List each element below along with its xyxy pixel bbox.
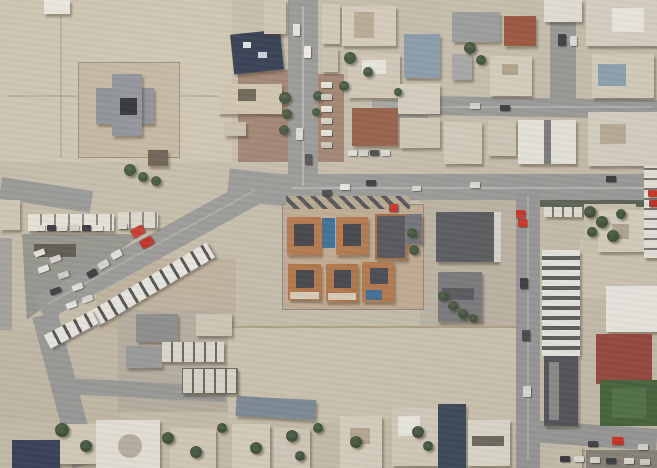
tree	[476, 55, 486, 65]
dark-shed	[148, 150, 168, 166]
tree	[295, 451, 305, 461]
warehouse-striped	[542, 250, 580, 356]
median-top-vertical	[302, 6, 304, 186]
villa-5-trim	[328, 293, 356, 300]
building-s1	[444, 122, 482, 164]
school-units-row-2	[182, 368, 238, 394]
red-vehicle	[518, 219, 527, 227]
tree	[409, 245, 419, 255]
small-building-tc	[224, 122, 246, 136]
tree	[469, 314, 477, 322]
tree	[312, 108, 320, 116]
car	[322, 190, 332, 196]
parked-car	[321, 118, 332, 124]
tree	[407, 228, 417, 238]
hex-building-core	[120, 98, 137, 115]
white-villa-dome	[118, 434, 142, 458]
parked-car	[321, 82, 332, 88]
darkblue-building-bottom	[438, 404, 466, 468]
tree	[458, 309, 468, 319]
building-r1	[398, 84, 440, 114]
tree	[217, 423, 227, 433]
terracotta-building	[504, 16, 536, 46]
villa-4-trim	[290, 292, 319, 299]
car	[606, 176, 616, 182]
tree	[250, 442, 262, 454]
red-vehicle	[389, 204, 398, 212]
building-east-of-road	[322, 48, 338, 72]
twin-white-gap	[544, 120, 551, 164]
villa-1-roof	[294, 224, 314, 246]
tree	[151, 176, 161, 186]
tree	[596, 216, 608, 228]
parked-car	[606, 458, 616, 464]
tree	[286, 430, 298, 442]
car	[500, 105, 510, 111]
parked-car	[640, 459, 650, 465]
building-s2	[488, 120, 516, 156]
car	[293, 24, 300, 36]
tr-cluster-a-sub	[612, 8, 644, 32]
parked-car	[118, 223, 127, 229]
median-right-vertical	[527, 196, 529, 460]
blue-strip-building	[404, 34, 440, 78]
median-topright-street	[434, 106, 652, 108]
tree	[344, 52, 356, 64]
parked-car	[624, 458, 634, 464]
tree	[55, 423, 69, 437]
gray-small-tr	[452, 54, 472, 80]
block-a-sub	[354, 12, 374, 38]
tree	[279, 125, 289, 135]
tree	[423, 441, 433, 451]
red-vehicle	[648, 190, 657, 197]
brown-building	[352, 108, 398, 146]
red-sports-court	[596, 334, 652, 384]
parked-car	[348, 150, 357, 156]
building-r2	[400, 118, 440, 148]
parked-car	[321, 142, 332, 148]
parked-car	[47, 225, 56, 231]
school-units-row-1	[162, 342, 224, 362]
parked-car	[82, 225, 91, 231]
parked-car	[321, 130, 332, 136]
red-vehicle	[612, 437, 623, 445]
parked-car	[94, 225, 103, 231]
car	[522, 330, 530, 341]
tree	[607, 230, 619, 242]
tree	[448, 301, 458, 311]
car	[523, 386, 531, 397]
beige-tr-courtyard	[502, 64, 518, 75]
villa-3-dark	[375, 214, 407, 260]
tree	[363, 67, 373, 77]
navy-roof-corner	[12, 440, 60, 468]
parked-car	[321, 106, 332, 112]
sand-track-v	[60, 8, 62, 158]
tree	[350, 436, 362, 448]
car	[588, 441, 598, 447]
villa-4-roof	[296, 270, 314, 288]
villa-5-roof	[334, 270, 351, 288]
parked-car	[36, 225, 45, 231]
navy-roof-vent	[243, 42, 251, 48]
parked-car	[58, 225, 67, 231]
school-building-2	[126, 346, 162, 368]
right-mid-sub	[600, 124, 626, 144]
white-building-bottom-sub	[472, 436, 504, 446]
car	[520, 278, 528, 289]
gray-building-tr	[452, 12, 500, 42]
tree	[584, 206, 596, 218]
tree	[138, 172, 148, 182]
beige-building-tr	[490, 56, 532, 96]
school-building-3	[196, 314, 232, 336]
white-shed-top	[44, 0, 70, 14]
satellite-map-canvas[interactable]	[0, 0, 657, 468]
tree	[190, 446, 202, 458]
car	[366, 180, 376, 186]
green-field-inner	[612, 388, 646, 418]
car	[412, 186, 421, 191]
tree	[394, 88, 402, 96]
red-vehicle	[516, 210, 525, 218]
parked-car	[321, 94, 332, 100]
car	[638, 444, 648, 450]
parked-car	[70, 225, 79, 231]
tree	[282, 109, 292, 119]
dark-big-building	[436, 212, 498, 262]
road-left-edge	[0, 238, 12, 330]
units-column-right-edge	[644, 166, 657, 258]
car	[340, 184, 350, 190]
car	[305, 154, 312, 165]
parked-car	[590, 457, 600, 463]
warehouse-dark-sub	[549, 362, 559, 420]
courtyard-inner	[238, 89, 256, 101]
parked-car	[359, 150, 368, 156]
car	[570, 36, 577, 46]
pool-1	[322, 218, 335, 248]
blue-roof-tr	[598, 64, 626, 86]
car	[304, 46, 311, 58]
white-building-tr	[544, 0, 582, 22]
red-vehicle	[649, 200, 657, 207]
long-blue-roof	[236, 396, 317, 420]
tree	[339, 81, 349, 91]
car	[558, 34, 566, 46]
villa-6-roof	[370, 268, 388, 284]
dark-big-edge	[494, 212, 501, 262]
tree	[438, 291, 448, 301]
tree	[279, 92, 291, 104]
parked-car	[370, 150, 379, 156]
tree	[616, 209, 626, 219]
navy-building	[230, 29, 284, 74]
tree	[587, 227, 597, 237]
tree	[464, 42, 476, 54]
navy-roof-vent	[258, 52, 267, 58]
car	[470, 182, 480, 188]
tree	[124, 164, 136, 176]
pool-6	[366, 290, 382, 300]
school-building-1	[136, 314, 178, 342]
white-big-building	[606, 286, 657, 332]
tree	[80, 440, 92, 452]
tree	[412, 426, 424, 438]
building-east-of-road	[322, 4, 340, 44]
villa-2-roof	[343, 224, 361, 246]
parked-car	[574, 456, 584, 462]
building-west-of-road	[264, 0, 286, 34]
tree	[313, 423, 323, 433]
tree	[162, 432, 174, 444]
left-edge-building	[0, 200, 20, 230]
parked-car	[560, 456, 570, 462]
parked-car	[381, 150, 390, 156]
car	[296, 128, 303, 140]
car	[470, 103, 480, 109]
